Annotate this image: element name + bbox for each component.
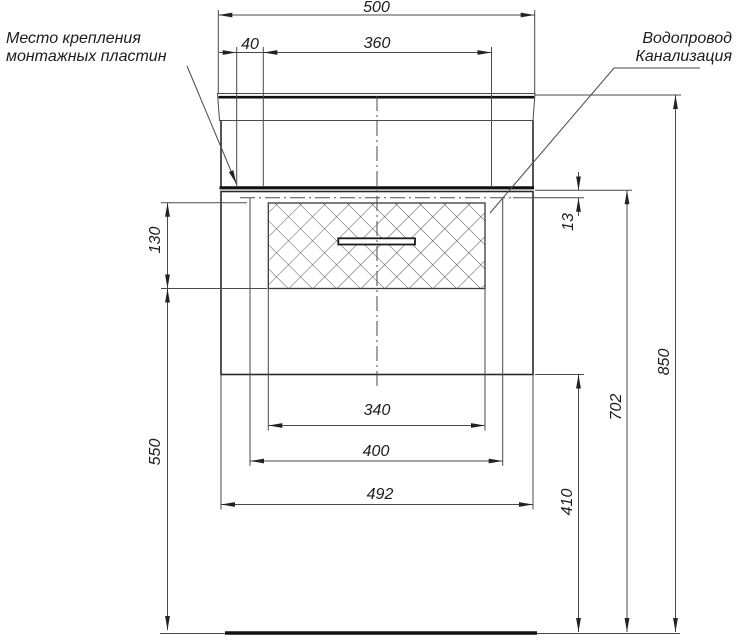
dim-cabinet-width-label: 492	[367, 487, 394, 503]
dim-top-offset-label: 13	[561, 213, 577, 231]
dim-hatch-width-label: 340	[364, 403, 391, 419]
plumbing-note-line2: Канализация	[635, 48, 732, 66]
plumbing-note: Водопровод Канализация	[635, 30, 732, 65]
mounting-plates-note-line1: Место крепления	[6, 30, 167, 48]
dim-overall-height-label: 850	[657, 349, 673, 376]
dim-mounting-span-label: 360	[364, 36, 391, 52]
mounting-plates-note-line2: монтажных пластин	[6, 48, 167, 66]
washbasin-slab	[218, 94, 536, 121]
vanity-installation-drawing	[0, 0, 736, 640]
dim-inner-width-label: 400	[363, 444, 390, 460]
dim-plate-offset-label: 40	[241, 37, 259, 53]
dim-overall-width-label: 500	[363, 0, 390, 16]
dim-clearance-height-label: 550	[148, 439, 164, 466]
dim-bottom-height-label: 410	[560, 489, 576, 516]
dim-hatch-height-label: 130	[148, 227, 164, 254]
mounting-plates-leader	[187, 66, 237, 184]
plumbing-note-line1: Водопровод	[635, 30, 732, 48]
dim-mounting-height-label: 702	[609, 393, 625, 420]
mounting-plates-note: Место крепления монтажных пластин	[6, 30, 167, 65]
technical-drawing-canvas: 500 360 40 340 400 492 130 550 13 410 70…	[0, 0, 736, 640]
dimension-lines	[168, 15, 676, 632]
floor-line	[160, 633, 680, 634]
